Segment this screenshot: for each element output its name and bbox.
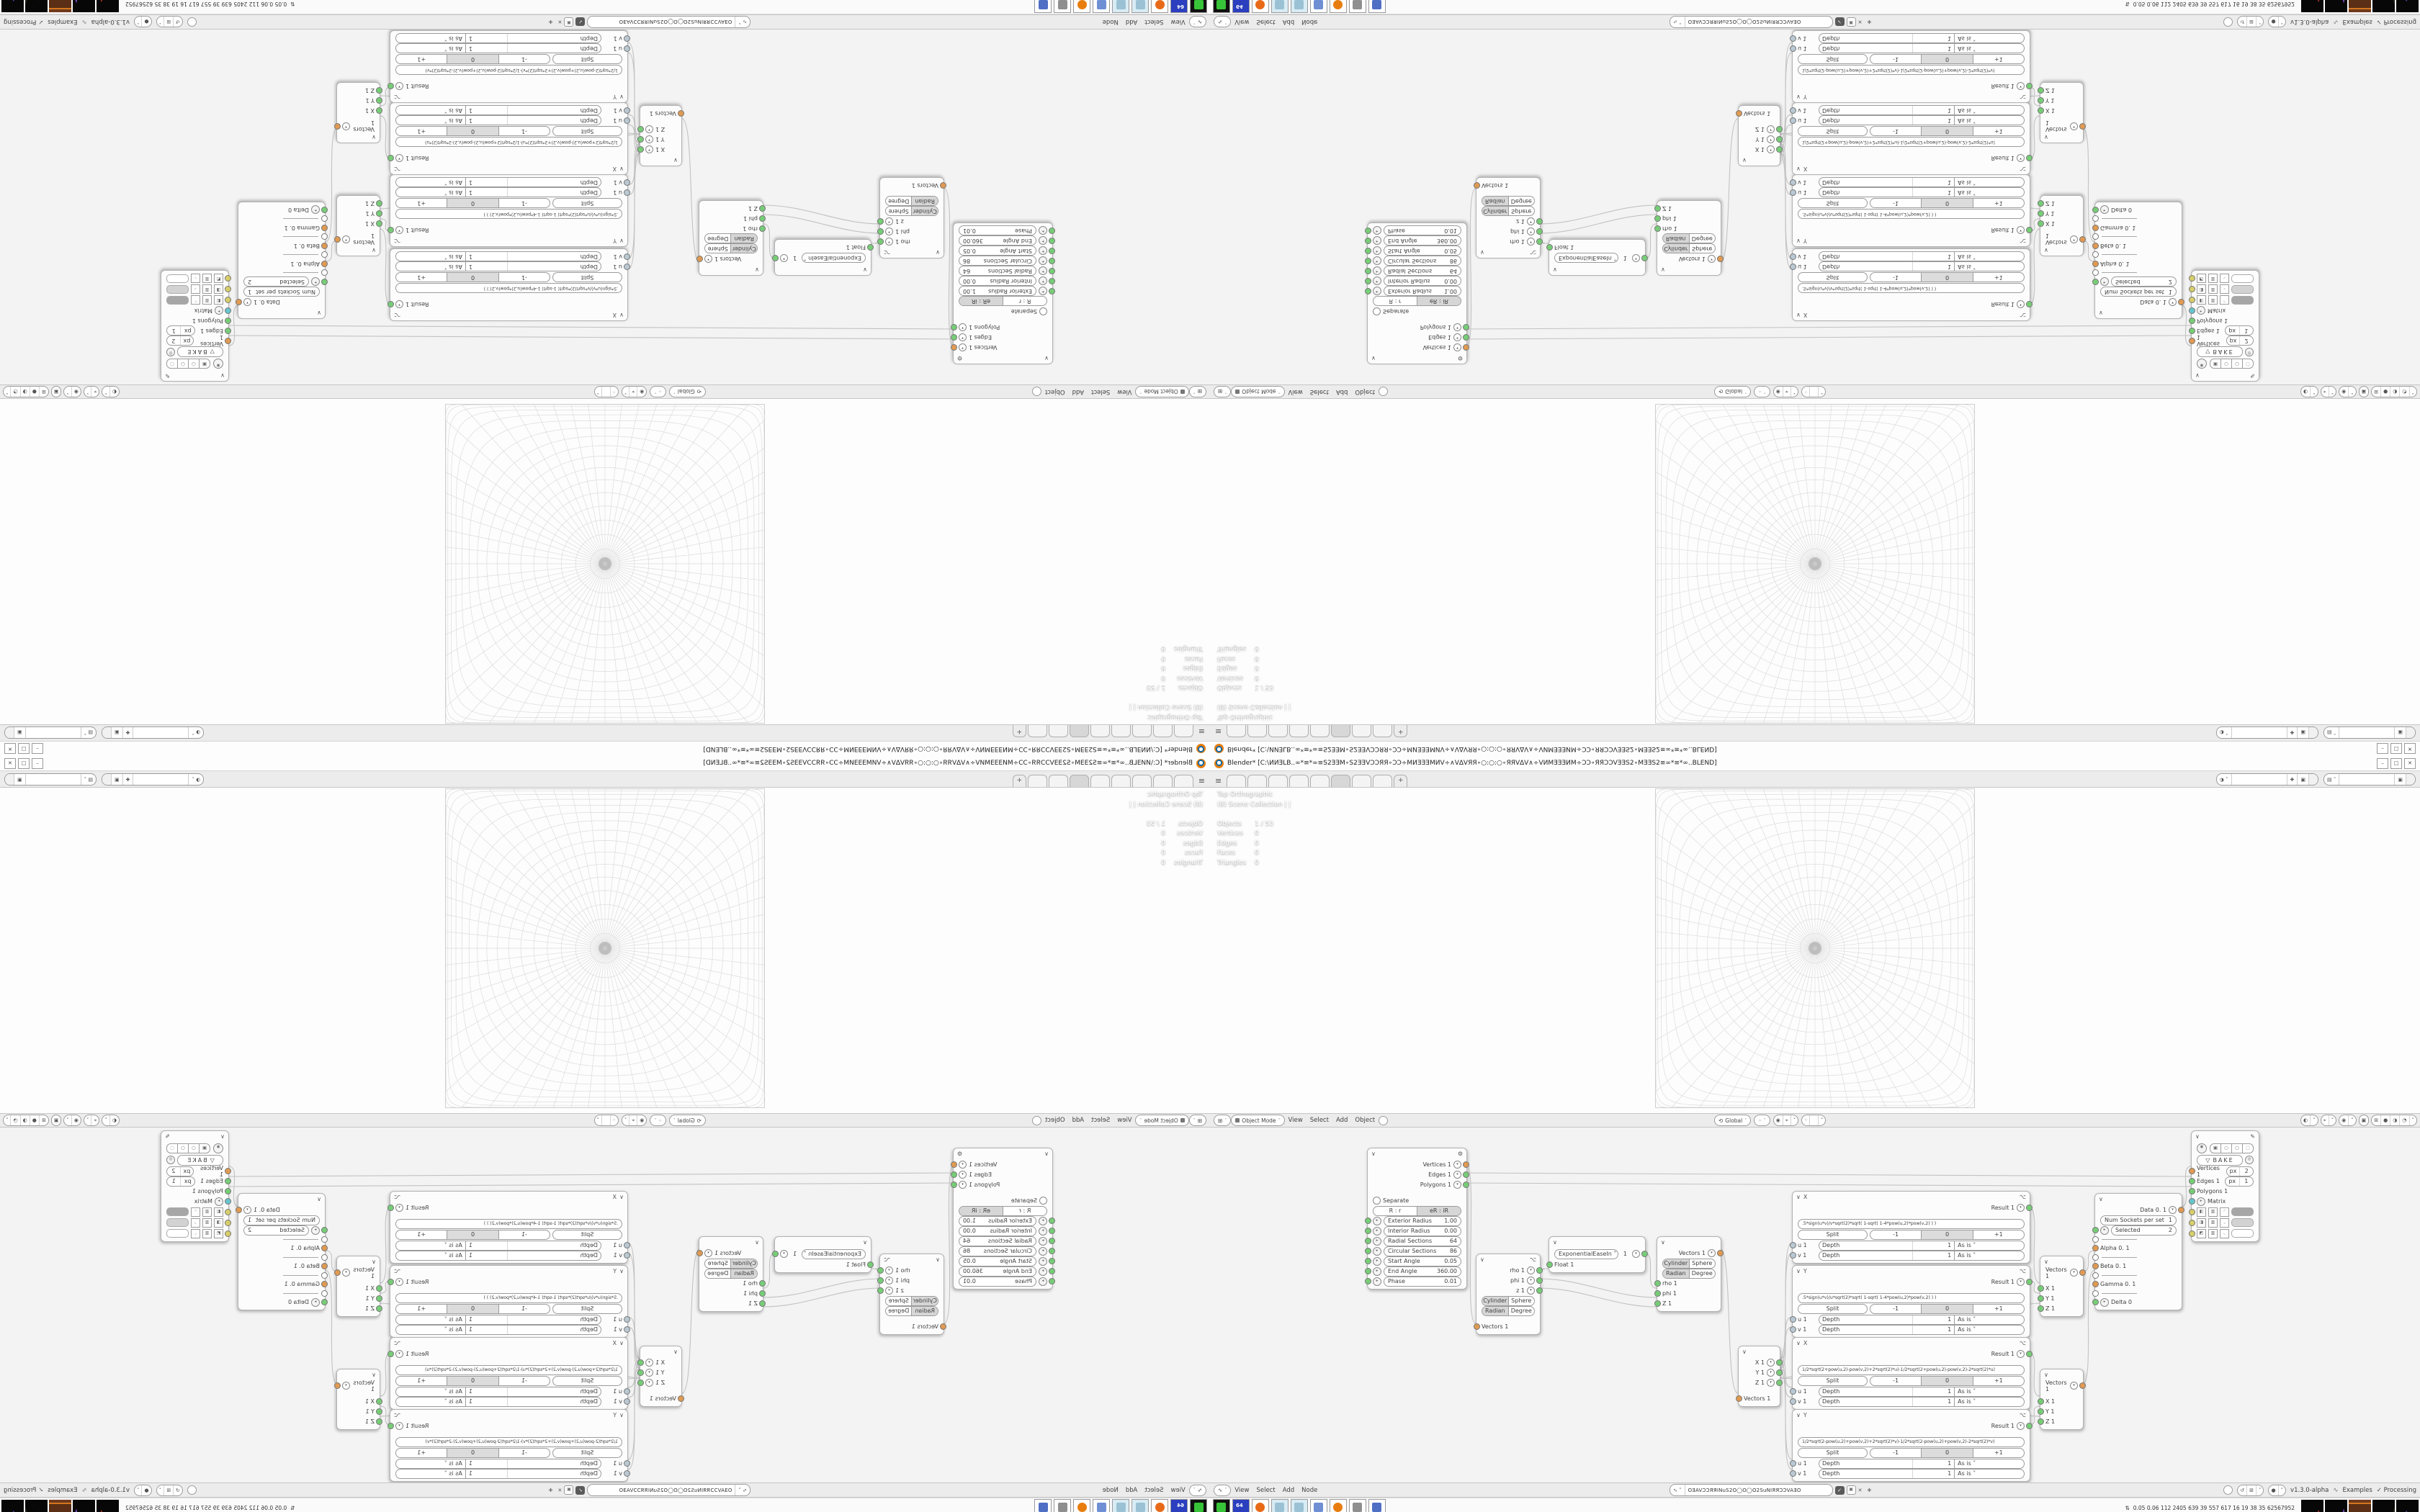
notepad-icon[interactable] (1271, 1499, 1289, 1512)
pin-icon[interactable]: ✚ (2287, 774, 2298, 785)
speaker-icon[interactable] (1349, 1499, 1366, 1512)
node-socket[interactable] (2038, 1398, 2044, 1405)
node-socket[interactable] (1365, 258, 1371, 264)
pill-field[interactable]: Selected2 (2111, 277, 2177, 287)
node-socket[interactable] (1654, 225, 1661, 232)
pivot-dropdown[interactable]: ◦˅ (650, 386, 665, 397)
node-socket[interactable] (376, 87, 382, 94)
interp-mode[interactable]: As is ˅ (396, 263, 466, 271)
toggle-option[interactable]: Degree (886, 197, 913, 206)
node-combine-vector-2[interactable]: ∨Vectors 1▾X 1Y 1Z 1 (2040, 1369, 2084, 1430)
toggle-pair[interactable]: CylinderSphere (1482, 1296, 1535, 1306)
pill-field[interactable]: Num Sockets per set1 (243, 1215, 320, 1225)
offset-option[interactable]: +1 (396, 1449, 447, 1457)
node-split-spherical[interactable]: ∨⌥rho 1▾phi 1▾z 1▾CylinderSphereRadianDe… (1476, 177, 1541, 258)
node-socket[interactable] (2189, 287, 2195, 293)
socket-dropdown-icon[interactable]: ▾ (959, 1171, 967, 1179)
depth-dropdown[interactable]: Depth1As is ˅ (395, 262, 601, 272)
shading-ball-icon[interactable]: ⊞ (2372, 387, 2380, 397)
node-socket[interactable] (772, 255, 779, 261)
px-field[interactable]: px1 (166, 326, 195, 336)
offset-option[interactable]: -1 (499, 1230, 550, 1239)
node-socket[interactable] (624, 117, 630, 124)
menu-node[interactable]: Node (1301, 1487, 1317, 1494)
firefox-icon[interactable] (1252, 0, 1269, 13)
sorcar-node-editor[interactable]: ∨⚙Vertices 1▾Edges 1▾Polygons 1▾Separate… (0, 29, 1210, 384)
collapse-chevron-icon[interactable]: ∨ (2195, 1133, 2200, 1140)
menu-select[interactable]: Select (1144, 1487, 1163, 1494)
px-field[interactable]: px1 (166, 1176, 195, 1187)
formula-field[interactable]: .5*sign(u*v)/u*sqrt(2)*sqrt( 1-sqrt( 1-4… (395, 1293, 622, 1303)
split-button[interactable]: Split (552, 272, 622, 282)
snap-toggle-group[interactable]: ◉⌖˅ (622, 386, 647, 397)
notepad-icon[interactable] (1271, 0, 1289, 13)
node-header[interactable]: ∨Y⌥ (390, 91, 627, 102)
socket-dropdown-icon[interactable]: ▾ (1708, 1249, 1716, 1257)
node-header[interactable]: ∨ (1657, 1237, 1721, 1248)
editor-type-button[interactable]: ⊞˅ (1189, 1115, 1206, 1126)
split-button[interactable]: Split (1798, 272, 1868, 282)
firefox-icon[interactable] (1151, 0, 1168, 13)
checkbox[interactable] (1039, 307, 1047, 315)
collapse-chevron-icon[interactable]: ∨ (2044, 247, 2048, 253)
workspace-tab[interactable] (1331, 725, 1350, 737)
formula-field[interactable]: 1/2*sqrt(2+pow(u,2)-pow(v,2)+2*sqrt(2)*u… (1798, 137, 2025, 147)
node-tree-name[interactable]: OƎAVƆƆЯЯINuS2O◯O◯O2SuNIЯЯƆƆVAƎO (588, 17, 735, 27)
node-socket[interactable] (877, 238, 884, 245)
node-socket[interactable] (1790, 253, 1796, 260)
workspace-tab[interactable] (1153, 725, 1173, 737)
toggle-option[interactable]: eR : iR (959, 1207, 1003, 1215)
node-socket[interactable] (321, 207, 328, 213)
menu-add[interactable]: Add (1126, 19, 1137, 26)
display-mode-icon[interactable]: ○ (178, 360, 189, 369)
workspace-tab[interactable] (1227, 775, 1246, 787)
channel-icon[interactable]: ▥ (2208, 1229, 2218, 1238)
value-field[interactable]: Interior Radius0.00 (1384, 1226, 1461, 1236)
viewport-3d[interactable]: Top Orthographic(8) Scene Collection | |… (0, 788, 1210, 1114)
new-scene-button[interactable] (2308, 727, 2318, 738)
app-window-icon[interactable] (1310, 0, 1327, 13)
channel-icon[interactable]: ▥ (2208, 1218, 2218, 1228)
proportional-edit-group[interactable]: ◦ ˅ (594, 1115, 619, 1126)
collapse-chevron-icon[interactable]: ∨ (619, 238, 624, 244)
toggle-option[interactable]: Degree (1689, 235, 1716, 243)
node-header[interactable]: ∨Y⌥ (1793, 235, 2030, 246)
node-socket[interactable] (1049, 1258, 1055, 1264)
depth-dropdown[interactable]: Depth1As is ˅ (395, 1315, 601, 1325)
drive-icon[interactable] (1213, 1499, 1230, 1512)
overlay-group[interactable]: ●˅ (2268, 17, 2286, 28)
node-header[interactable]: ∨ (1549, 1237, 1645, 1248)
node-socket[interactable] (951, 334, 957, 341)
orientation-dropdown[interactable]: ⟲Global˅ (669, 386, 706, 397)
overlay-group[interactable]: ●˅ (2268, 1485, 2286, 1496)
menu-add[interactable]: Add (1336, 1117, 1348, 1124)
pill-field[interactable]: Num Sockets per set1 (243, 287, 320, 297)
node-socket[interactable] (376, 220, 382, 227)
socket-dropdown-icon[interactable]: ▾ (2017, 82, 2025, 90)
node-socket[interactable] (624, 1398, 630, 1405)
split-button[interactable]: Split (552, 54, 622, 64)
value-field[interactable]: End Angle360.00 (1384, 236, 1461, 246)
node-socket[interactable] (2026, 1205, 2033, 1211)
node-socket[interactable] (376, 1408, 382, 1415)
depth-dropdown[interactable]: Depth1As is ˅ (395, 44, 601, 54)
collapse-chevron-icon[interactable]: ∨ (619, 94, 624, 100)
channel-icon[interactable]: ◩ (214, 274, 223, 284)
collapse-chevron-icon[interactable]: ∨ (1553, 266, 1557, 273)
node-socket[interactable] (376, 1398, 382, 1405)
depth-dropdown[interactable]: Depth1As is ˅ (395, 188, 601, 198)
node-socket[interactable] (1365, 1278, 1371, 1284)
node-header[interactable]: ∨⌥ (1476, 247, 1540, 258)
node-socket[interactable] (1365, 1248, 1371, 1254)
display-mode-icon[interactable]: ◌ (167, 360, 178, 369)
easing-dropdown[interactable]: ExponentialEaseIn ˅ (1554, 253, 1618, 264)
copy-icon[interactable]: ▣ (564, 1485, 573, 1495)
offset-segment[interactable]: -10+1 (1870, 54, 2025, 64)
value-field[interactable]: Phase0.01 (1384, 1277, 1461, 1287)
overlays-dropdown[interactable]: ◉˅ (63, 1115, 81, 1126)
shading-mode-group[interactable]: ⊞●◑◔˅ (3, 1115, 49, 1126)
node-socket[interactable] (1536, 218, 1543, 225)
collapse-chevron-icon[interactable]: ∨ (1480, 1256, 1484, 1263)
node-custom-inputs[interactable]: ∨Data 0. 1▾Num Sockets per set1▸Selected… (238, 202, 326, 319)
toggle-pair[interactable]: R : reR : iR (1373, 1206, 1461, 1216)
close-button[interactable]: ✕ (4, 758, 16, 769)
node-socket[interactable] (678, 110, 684, 117)
node-socket[interactable] (1790, 264, 1796, 270)
value-field[interactable]: Radial Sections64 (959, 266, 1036, 276)
node-socket[interactable] (2092, 1227, 2099, 1233)
proportional-edit-group[interactable]: ◦ ˅ (1801, 1115, 1826, 1126)
node-socket[interactable] (2038, 1418, 2044, 1425)
notepad-icon[interactable] (1112, 1499, 1129, 1512)
node-math-y2[interactable]: ∨Y⌥Result 1▾1/2*sqrt(2-pow(u,2)+pow(v,2)… (1792, 30, 2030, 103)
pin-icon[interactable]: ✚ (1867, 1488, 1871, 1493)
collapse-chevron-icon[interactable]: ∨ (619, 1340, 624, 1346)
node-math-x2[interactable]: ∨X⌥Result 1▾1/2*sqrt(2+pow(u,2)-pow(v,2)… (1792, 1337, 2030, 1410)
formula-field[interactable]: .5*sign(u*v)/v*sqrt(2)*sqrt( 1-sqrt( 1-4… (1798, 283, 2025, 293)
toggle-pair[interactable]: RadianDegree (885, 197, 938, 207)
node-socket[interactable] (2026, 1351, 2033, 1357)
workspace-tab[interactable] (1070, 775, 1089, 787)
interp-mode[interactable]: As is ˅ (396, 1387, 466, 1396)
node-math-x2[interactable]: ∨X⌥Result 1▾1/2*sqrt(2+pow(u,2)-pow(v,2)… (390, 1337, 628, 1410)
node-socket[interactable] (1463, 1161, 1469, 1168)
offset-option[interactable]: +1 (396, 273, 447, 282)
node-socket[interactable] (1654, 205, 1661, 212)
value-field[interactable]: Interior Radius0.00 (1384, 276, 1461, 287)
node-torus[interactable]: ∨⚙Vertices 1▾Edges 1▾Polygons 1▾Separate… (953, 222, 1053, 364)
workspace-tab[interactable] (1153, 775, 1173, 787)
socket-dropdown-icon[interactable]: ▾ (342, 235, 350, 243)
node-socket[interactable] (2038, 107, 2044, 114)
channel-icon[interactable]: ◧ (214, 296, 223, 305)
offset-option[interactable]: -1 (1870, 199, 1921, 207)
node-tree-name[interactable]: OƎAVƆƆЯЯINuS2O◯O◯O2SuNIЯЯƆƆVAƎO (1685, 1485, 1832, 1495)
toggle-pair[interactable]: RadianDegree (704, 234, 758, 244)
node-combine-spherical[interactable]: ∨Vectors 1▾CylinderSphereRadianDegreerho… (699, 200, 763, 276)
snapping-group[interactable]: ↺⊞˅ (156, 17, 183, 28)
channel-icon[interactable]: ◜ (2220, 296, 2229, 305)
node-math-y1[interactable]: ∨Y⌥Result 1▾.5*sign(u*v)/u*sqrt(2)*sqrt(… (1792, 1265, 2030, 1338)
interp-mode[interactable]: As is ˅ (396, 1241, 466, 1250)
toggle-option[interactable]: Radian (732, 1269, 758, 1278)
node-header[interactable]: ∨⌥ (880, 247, 944, 258)
socket-dropdown-icon[interactable]: ▾ (395, 1204, 403, 1212)
socket-dropdown-icon[interactable]: ▾ (959, 343, 967, 351)
copy-icon[interactable]: ▣ (1847, 1485, 1856, 1495)
menu-add[interactable]: Add (1336, 388, 1348, 395)
depth-dropdown[interactable]: Depth1As is ˅ (395, 1241, 601, 1251)
node-math-y1[interactable]: ∨Y⌥Result 1▾.5*sign(u*v)/u*sqrt(2)*sqrt(… (1792, 174, 2030, 247)
close-button[interactable]: ✕ (2404, 758, 2416, 769)
node-socket[interactable] (1546, 244, 1553, 251)
processing-checkbox[interactable]: ✓ Processing (2377, 1487, 2416, 1494)
offset-option[interactable]: 0 (447, 199, 498, 207)
node-socket[interactable] (321, 1299, 328, 1305)
pivot-dropdown[interactable]: ◦˅ (650, 1115, 665, 1126)
socket-dropdown-icon[interactable]: ▾ (1453, 343, 1461, 351)
formula-field[interactable]: 1/2*sqrt(2+pow(u,2)-pow(v,2)+2*sqrt(2)*u… (1798, 1365, 2025, 1375)
pill-field[interactable]: Num Sockets per set1 (2100, 287, 2177, 297)
collapse-chevron-icon[interactable]: ∨ (619, 166, 624, 172)
shading-mode-group[interactable]: ⊞●◑◔˅ (2371, 386, 2417, 397)
offset-option[interactable]: 0 (447, 1377, 498, 1385)
shading-ball-icon[interactable]: ◑ (21, 387, 30, 397)
offset-option[interactable]: -1 (499, 1449, 550, 1457)
node-socket[interactable] (1641, 1251, 1648, 1257)
node-math-y1[interactable]: ∨Y⌥Result 1▾.5*sign(u*v)/u*sqrt(2)*sqrt(… (390, 1265, 628, 1338)
node-math-y2[interactable]: ∨Y⌥Result 1▾1/2*sqrt(2-pow(u,2)+pow(v,2)… (390, 30, 628, 103)
node-header[interactable]: ∨X⌥ (390, 310, 627, 320)
node-combine-vector-1[interactable]: ∨Vectors 1▾X 1Y 1Z 1 (336, 195, 380, 256)
toggle-option[interactable]: Degree (886, 1307, 913, 1315)
collapse-chevron-icon[interactable]: ∨ (619, 312, 624, 318)
interp-mode[interactable]: As is ˅ (396, 117, 466, 125)
pin-icon[interactable]: ✚ (123, 727, 134, 738)
node-socket[interactable] (2092, 1254, 2099, 1261)
node-math-x2[interactable]: ∨X⌥Result 1▾1/2*sqrt(2+pow(u,2)-pow(v,2)… (390, 102, 628, 175)
display-mode-icon[interactable]: ▣ (200, 360, 210, 369)
interp-mode[interactable]: As is ˅ (1954, 253, 2024, 261)
processing-checkbox[interactable]: ✓ Processing (4, 1487, 43, 1494)
channel-icon[interactable]: ◜ (2220, 1207, 2229, 1217)
node-socket[interactable] (321, 225, 328, 231)
node-socket[interactable] (1776, 1380, 1783, 1386)
maximize-button[interactable]: □ (2390, 758, 2402, 769)
workspace-tab[interactable] (1289, 775, 1309, 787)
socket-dropdown-icon[interactable]: ▾ (645, 1379, 653, 1387)
unlink-icon[interactable]: ✕ (558, 1488, 563, 1493)
node-socket[interactable] (225, 1188, 231, 1194)
node-socket[interactable] (2092, 1236, 2099, 1243)
workspace-tab[interactable] (1247, 775, 1267, 787)
drive-icon[interactable] (1213, 0, 1230, 13)
collapse-chevron-icon[interactable]: ∨ (317, 310, 321, 316)
node-socket[interactable] (2092, 252, 2099, 258)
new-scene-button[interactable] (102, 774, 112, 785)
interp-mode[interactable]: As is ˅ (1954, 189, 2024, 197)
interp-mode[interactable]: As is ˅ (1954, 1251, 2024, 1260)
minimize-button[interactable]: – (32, 758, 43, 769)
workspace-tab[interactable] (1174, 725, 1193, 737)
px-field[interactable]: px2 (166, 1166, 194, 1176)
node-socket[interactable] (334, 1269, 341, 1276)
socket-dropdown-icon[interactable]: ▾ (645, 125, 653, 133)
node-tree-selector[interactable]: ∿ ˅ OƎAVƆƆЯЯINuS2O◯O◯O2SuNIЯЯƆƆVAƎO (1670, 16, 1833, 28)
depth-dropdown[interactable]: Depth1As is ˅ (395, 1251, 601, 1261)
offset-segment[interactable]: -10+1 (395, 1304, 550, 1314)
socket-dropdown-icon[interactable]: ▾ (959, 333, 967, 341)
terminal-icon[interactable] (1368, 1499, 1386, 1512)
depth-dropdown[interactable]: Depth1As is ˅ (1819, 1241, 2025, 1251)
toggle-pair[interactable]: CylinderSphere (704, 244, 758, 254)
interp-mode[interactable]: As is ˅ (1954, 1241, 2024, 1250)
node-socket[interactable] (2092, 243, 2099, 249)
socket-dropdown-icon[interactable]: ▾ (1527, 217, 1535, 225)
channel-icon[interactable]: ◨ (214, 285, 223, 294)
node-header[interactable]: ∨Y⌥ (1793, 1266, 2030, 1277)
workspace-tab[interactable] (1310, 725, 1330, 737)
interp-mode[interactable]: As is ˅ (1954, 179, 2024, 187)
node-socket[interactable] (1365, 1238, 1371, 1244)
blender-icon[interactable] (1330, 0, 1347, 13)
node-socket[interactable] (877, 1277, 884, 1284)
channel-icon[interactable]: ▥ (202, 1207, 212, 1217)
socket-dropdown-icon[interactable]: ▾ (1527, 1266, 1535, 1274)
interp-mode[interactable]: As is ˅ (396, 1459, 466, 1468)
split-button[interactable]: Split (552, 1376, 622, 1386)
offset-option[interactable]: -1 (499, 1377, 550, 1385)
toggle-option[interactable]: Cylinder (913, 207, 938, 216)
offset-option[interactable]: -1 (1870, 1377, 1921, 1385)
shading-ball-icon[interactable]: ● (30, 1115, 40, 1125)
node-socket[interactable] (376, 1418, 382, 1425)
node-socket[interactable] (2092, 1299, 2099, 1305)
node-socket[interactable] (624, 189, 630, 196)
collapse-chevron-icon[interactable]: ∨ (755, 1239, 759, 1246)
node-combine-vector-1[interactable]: ∨Vectors 1▾X 1Y 1Z 1 (336, 1256, 380, 1317)
node-bake-output[interactable]: ∨✎◉▣○○◌▽BAKE◎Vertices 1px2Edges 1px1Poly… (161, 270, 229, 382)
offset-option[interactable]: +1 (1973, 1449, 2024, 1457)
node-socket[interactable] (321, 1281, 328, 1287)
toggle-option[interactable]: Cylinder (1482, 207, 1508, 216)
proportional-edit-group[interactable]: ◦ ˅ (1801, 386, 1826, 397)
node-header[interactable]: ∨⚙ (954, 1148, 1052, 1159)
node-custom-inputs[interactable]: ∨Data 0. 1▾Num Sockets per set1▸Selected… (238, 1193, 326, 1310)
node-socket[interactable] (2026, 1423, 2033, 1429)
orientation-dropdown[interactable]: ⟲Global˅ (1714, 386, 1751, 397)
split-button[interactable]: Split (552, 126, 622, 136)
node-socket[interactable] (2038, 1408, 2044, 1415)
node-socket[interactable] (1365, 1218, 1371, 1224)
channel-icon[interactable]: ◩ (214, 1229, 223, 1238)
depth-dropdown[interactable]: Depth1As is ˅ (1819, 1315, 2025, 1325)
socket-dropdown-icon[interactable]: ▾ (1767, 125, 1775, 133)
node-socket[interactable] (624, 1252, 630, 1259)
socket-dropdown-icon[interactable]: ▾ (395, 1350, 403, 1358)
node-header[interactable]: ∨ (1549, 264, 1645, 275)
close-button[interactable]: ✕ (4, 744, 16, 755)
scene-name-field[interactable] (2231, 727, 2287, 738)
collapse-chevron-icon[interactable]: ∨ (372, 247, 376, 253)
socket-dropdown-icon[interactable]: ▾ (885, 228, 893, 235)
editor-type-button[interactable]: ∿˅ (1214, 17, 1231, 28)
node-socket[interactable] (376, 200, 382, 207)
fake-user-shield-icon[interactable]: ✓ (1835, 1486, 1845, 1495)
split-button[interactable]: Split (1798, 1448, 1868, 1458)
menu-select[interactable]: Select (1256, 1487, 1275, 1494)
node-combine-vector-2[interactable]: ∨Vectors 1▾X 1Y 1Z 1 (2040, 82, 2084, 143)
node-socket[interactable] (637, 146, 644, 153)
offset-segment[interactable]: -10+1 (1870, 1448, 2025, 1458)
offset-option[interactable]: +1 (396, 55, 447, 63)
node-tree-name[interactable]: OƎAVƆƆЯЯINuS2O◯O◯O2SuNIЯЯƆƆVAƎO (588, 1485, 735, 1495)
socket-dropdown-icon[interactable]: ▾ (1767, 1359, 1775, 1367)
value-field[interactable]: End Angle360.00 (1384, 1266, 1461, 1277)
node-header[interactable]: ∨X⌥ (1793, 1192, 2030, 1202)
sorcar-node-editor[interactable]: ∨⚙Vertices 1▾Edges 1▾Polygons 1▾Separate… (0, 1128, 1210, 1483)
pin-icon[interactable]: ✚ (549, 19, 553, 25)
value-field[interactable]: Interior Radius0.00 (959, 276, 1036, 287)
node-socket[interactable] (1790, 1470, 1796, 1477)
node-socket[interactable] (1776, 146, 1783, 153)
depth-dropdown[interactable]: Depth1As is ˅ (1819, 1251, 2025, 1261)
channel-icon[interactable]: ▥ (2208, 1207, 2218, 1217)
node-socket[interactable] (1654, 1300, 1661, 1307)
toggle-option[interactable]: Radian (1482, 1307, 1508, 1315)
socket-dropdown-icon[interactable]: ▾ (1453, 1161, 1461, 1169)
tool-circle-icon[interactable] (187, 17, 197, 27)
menu-add[interactable]: Add (1126, 1487, 1137, 1494)
node-header[interactable]: ∨ (640, 155, 681, 166)
node-socket[interactable] (321, 1227, 328, 1233)
node-socket[interactable] (387, 1351, 394, 1357)
node-split-spherical[interactable]: ∨⌥rho 1▾phi 1▾z 1▾CylinderSphereRadianDe… (879, 1254, 944, 1335)
collapse-chevron-icon[interactable]: ∨ (2099, 1196, 2103, 1202)
channel-icon[interactable]: ▥ (2208, 296, 2218, 305)
node-socket[interactable] (1717, 1250, 1724, 1256)
channel-icon[interactable]: ◟ (191, 1229, 200, 1238)
node-socket[interactable] (376, 1295, 382, 1302)
value-field[interactable]: Start Angle0.05 (1384, 246, 1461, 256)
editor-type-button[interactable]: ⊞˅ (1189, 386, 1206, 397)
socket-dropdown-icon[interactable]: ▾ (342, 122, 350, 130)
toggle-pair[interactable]: CylinderSphere (1662, 1259, 1716, 1269)
node-socket[interactable] (1736, 110, 1742, 117)
offset-option[interactable]: +1 (1973, 1305, 2024, 1313)
channel-icon[interactable]: ◩ (2197, 1229, 2206, 1238)
socket-dropdown-icon[interactable]: ▾ (1527, 1287, 1535, 1295)
viewport-3d[interactable]: Top Orthographic(8) Scene Collection | |… (0, 398, 1210, 724)
node-socket[interactable] (2079, 123, 2086, 130)
bake-button[interactable]: ▽BAKE (2197, 1155, 2243, 1166)
offset-segment[interactable]: -10+1 (395, 54, 550, 64)
display-mode-icon[interactable]: ○ (2231, 1144, 2242, 1153)
menu-select[interactable]: Select (1310, 388, 1329, 395)
copy-icon[interactable]: ▣ (2394, 774, 2406, 785)
node-header[interactable]: ∨ (775, 264, 871, 275)
value-field[interactable]: Radial Sections64 (1384, 266, 1461, 276)
toggle-option[interactable]: Radian (913, 197, 938, 206)
node-math-x1[interactable]: ∨X⌥Result 1▾.5*sign(u*v)/v*sqrt(2)*sqrt(… (1792, 1191, 2030, 1264)
tool-circle-icon[interactable] (1379, 387, 1388, 397)
terminal-icon[interactable] (1034, 0, 1052, 13)
node-socket[interactable] (2189, 1188, 2195, 1194)
